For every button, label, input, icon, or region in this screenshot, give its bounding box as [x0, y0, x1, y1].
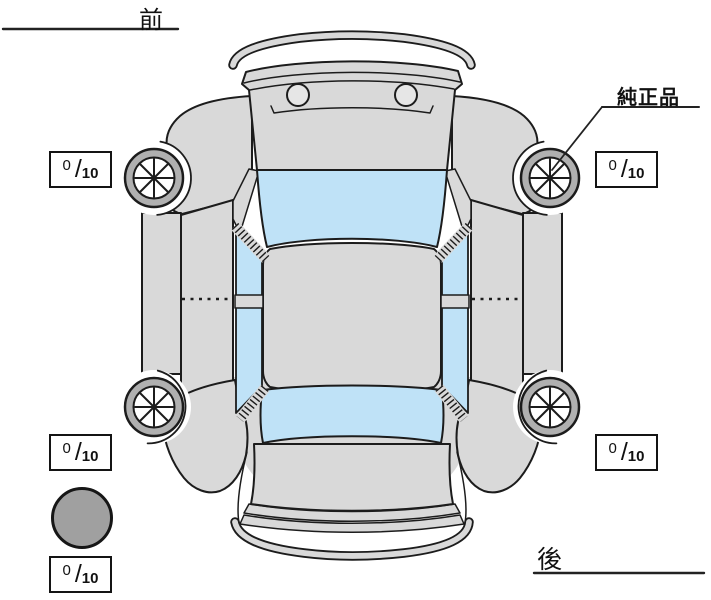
tread-depth-box-rear-left: 0/10 [49, 434, 112, 471]
tread-value: 0 [63, 157, 71, 174]
tread-value: 0 [609, 440, 617, 457]
tread-separator: / [621, 440, 628, 465]
windshield [257, 170, 447, 247]
rear-label: 後 [537, 540, 562, 576]
trunk-panel [251, 444, 453, 511]
rear-window [261, 386, 444, 444]
hood-right-circle [395, 84, 417, 106]
spare-tire-icon [51, 487, 113, 549]
tread-value: 0 [609, 157, 617, 174]
tread-separator: / [75, 157, 82, 182]
tread-separator: / [75, 562, 82, 587]
tread-depth-box-front-left: 0/10 [49, 151, 112, 188]
roof-panel [263, 243, 441, 393]
front-label: 前 [139, 0, 163, 35]
tread-max: 10 [82, 448, 99, 465]
tread-value: 0 [63, 562, 71, 579]
front-left-wheel-icon [125, 149, 183, 207]
tread-max: 10 [628, 448, 645, 465]
genuine-part-label: 純正品 [617, 81, 680, 110]
tread-max: 10 [82, 570, 99, 587]
tread-max: 10 [628, 165, 645, 182]
right-rocker-strip [523, 213, 562, 374]
tread-depth-box-spare: 0/10 [49, 556, 112, 593]
rear-right-wheel-icon [521, 378, 579, 436]
front-right-wheel-icon [521, 149, 579, 207]
left-b-pillar [235, 295, 263, 308]
tread-separator: / [621, 157, 628, 182]
left-rocker-strip [142, 213, 181, 374]
tread-depth-box-front-right: 0/10 [595, 151, 658, 188]
car-condition-diagram: 前 後 純正品 0/10 0/10 0/10 0/10 0/10 [0, 0, 711, 600]
right-b-pillar [441, 295, 469, 308]
tread-max: 10 [82, 165, 99, 182]
rear-left-wheel-icon [125, 378, 183, 436]
hood-left-circle [287, 84, 309, 106]
tread-value: 0 [63, 440, 71, 457]
tread-separator: / [75, 440, 82, 465]
tread-depth-box-rear-right: 0/10 [595, 434, 658, 471]
